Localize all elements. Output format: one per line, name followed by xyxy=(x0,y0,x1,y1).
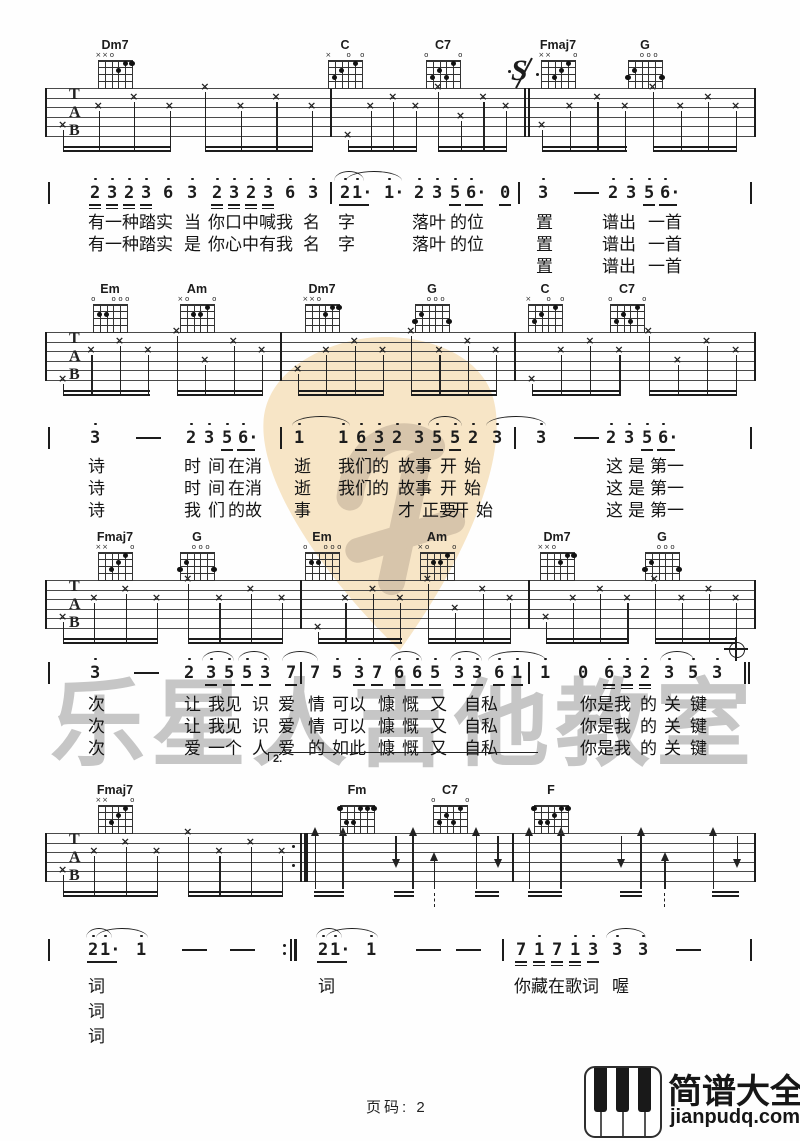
note-stem xyxy=(649,336,650,394)
octave-dot xyxy=(94,423,97,426)
held-dash xyxy=(416,949,441,952)
melody-barline xyxy=(750,427,752,449)
chord-dot xyxy=(632,68,637,73)
octave-dot xyxy=(454,178,457,181)
barline xyxy=(754,88,756,137)
melody-note: 3 xyxy=(432,183,442,203)
beam xyxy=(298,390,384,392)
chord-grid-line xyxy=(98,819,133,820)
underline xyxy=(245,204,257,206)
chord-grid-line xyxy=(534,826,569,827)
melody-note: 6 xyxy=(494,663,504,683)
chord-dot xyxy=(438,560,443,565)
octave-dot xyxy=(538,935,541,938)
underline xyxy=(429,684,441,686)
beam xyxy=(348,146,417,148)
melody-note: 2 xyxy=(90,183,100,203)
note-stem xyxy=(483,594,484,643)
chord-dot xyxy=(323,312,328,317)
chord-dot xyxy=(353,61,358,66)
chord-dot xyxy=(635,305,640,310)
underline xyxy=(123,204,135,206)
lyric-segment: 这 xyxy=(606,496,623,521)
chord-grid-line xyxy=(305,318,340,319)
lyric-segment: 关 xyxy=(664,734,681,759)
note-stem xyxy=(570,111,571,150)
underline xyxy=(449,449,461,451)
underline xyxy=(351,204,369,206)
chord-grid-line xyxy=(528,332,563,333)
lyric-segment: 始 xyxy=(476,496,493,521)
octave-dot xyxy=(216,178,219,181)
note-stem xyxy=(63,384,64,395)
underline xyxy=(499,204,511,206)
note-stem xyxy=(318,632,319,643)
tab-clef-letter: A xyxy=(69,849,81,867)
chord-grid-line xyxy=(540,573,575,574)
strum-arrowhead-down xyxy=(733,859,741,868)
melody-note: 3 xyxy=(712,663,722,683)
chord-grid-line xyxy=(305,332,340,333)
chord-dot xyxy=(316,560,321,565)
segno-dot xyxy=(508,70,511,73)
beam xyxy=(188,891,283,893)
octave-dot xyxy=(628,423,631,426)
chord-dot xyxy=(565,553,570,558)
lyric-segment: 开 xyxy=(452,496,469,521)
chord-grid-line xyxy=(610,311,645,312)
melody-note: 2 xyxy=(606,428,616,448)
chord-dot xyxy=(339,68,344,73)
melody-barline xyxy=(514,427,516,449)
note-stem xyxy=(483,102,484,151)
note-stem xyxy=(625,111,626,150)
chord-grid-line xyxy=(305,325,340,326)
lyric-segment: 如此 xyxy=(332,734,366,759)
chord-grid-line xyxy=(180,552,215,554)
underline xyxy=(639,688,651,690)
underline xyxy=(569,965,581,967)
beam xyxy=(63,394,150,396)
held-dash xyxy=(574,192,599,195)
chord-dot xyxy=(371,806,376,811)
underline xyxy=(643,204,655,206)
strum-arrowhead-up xyxy=(430,852,438,861)
beam xyxy=(318,638,402,640)
barline xyxy=(45,332,47,381)
octave-dot xyxy=(434,658,437,661)
beam xyxy=(653,146,738,148)
note-stem xyxy=(120,346,121,395)
lyric-segment: 的位 xyxy=(450,230,484,255)
octave-dot xyxy=(378,423,381,426)
lyric-segment: 自私 xyxy=(464,734,498,759)
beam xyxy=(542,146,627,148)
strum-down-arrow xyxy=(395,836,396,860)
strum-arrowhead-down xyxy=(392,859,400,868)
note-stem xyxy=(627,603,628,642)
chord-grid-line xyxy=(610,325,645,326)
lyric-segment: 慷 xyxy=(378,734,395,759)
chord-dot xyxy=(332,75,337,80)
octave-dot xyxy=(612,178,615,181)
chord-string-marker: o xyxy=(439,295,446,303)
note-stem xyxy=(590,346,591,395)
melody-note: 3 xyxy=(538,183,548,203)
lyric-segment: 你藏在歌词 xyxy=(514,972,599,997)
lyric-segment: 诗 xyxy=(88,496,105,521)
tie-arc xyxy=(486,416,546,426)
melody-note: 1 xyxy=(570,940,580,960)
chord-string-marker: o xyxy=(451,543,458,551)
underline xyxy=(587,961,599,963)
note-stem xyxy=(416,111,417,150)
tie-arc xyxy=(488,651,546,661)
melody-note: 3 xyxy=(536,428,546,448)
note-stem xyxy=(411,336,412,394)
underline xyxy=(569,961,581,963)
beam xyxy=(620,891,642,893)
melody-note: 2 xyxy=(318,940,328,960)
melody-note: 3 xyxy=(454,663,464,683)
melody-note: 6· xyxy=(466,183,486,203)
underline xyxy=(515,965,527,967)
chord-dot xyxy=(458,806,463,811)
lyric-segment: 我们的 xyxy=(338,474,389,499)
underline xyxy=(355,449,367,451)
chord-grid-line xyxy=(540,580,575,581)
repeat-thick-bar xyxy=(304,833,308,882)
held-dash xyxy=(182,949,207,952)
strum-arrowhead-up xyxy=(311,827,319,836)
barline xyxy=(300,580,302,629)
octave-dot xyxy=(592,935,595,938)
beam xyxy=(348,150,417,152)
chord-dot xyxy=(676,567,681,572)
chord-dot xyxy=(552,813,557,818)
lyric-segment: 的 xyxy=(640,734,657,759)
melody-repeat-dot xyxy=(283,944,286,947)
chord-grid-line xyxy=(340,812,375,813)
melody-note: 5 xyxy=(332,663,342,683)
melody-note: 1 xyxy=(512,663,522,683)
strum-arrowhead-down xyxy=(494,859,502,868)
chord-dot xyxy=(116,68,121,73)
melody-note: 3 xyxy=(354,663,364,683)
lyric-segment: 词 xyxy=(88,1022,105,1047)
melody-note: 7 xyxy=(372,663,382,683)
note-stem xyxy=(126,847,127,896)
chord-grid-line xyxy=(541,74,576,75)
beam xyxy=(653,150,738,152)
note-stem xyxy=(709,594,710,643)
underline xyxy=(621,688,633,690)
octave-dot xyxy=(289,178,292,181)
beam xyxy=(188,642,283,644)
staff-line xyxy=(45,117,754,118)
tab-clef-letter: B xyxy=(69,867,80,885)
chord-grid-line xyxy=(180,325,215,326)
chord-dot xyxy=(431,560,436,565)
lyric-segment: 慨 xyxy=(402,734,419,759)
staff-line xyxy=(45,98,754,99)
lyric-segment: 是 xyxy=(184,230,201,255)
lyric-segment: 词 xyxy=(88,972,105,997)
lyric-segment: 才 xyxy=(398,496,415,521)
beam xyxy=(655,638,738,640)
melody-note: 2 xyxy=(608,183,618,203)
melody-note: 6 xyxy=(163,183,173,203)
beam xyxy=(63,642,158,644)
beam xyxy=(411,394,497,396)
note-stem xyxy=(219,603,220,642)
chord-dot xyxy=(558,560,563,565)
chord-dot xyxy=(649,560,654,565)
chord-grid-line xyxy=(180,566,215,567)
melody-note: 2 xyxy=(340,183,350,203)
octave-dot xyxy=(145,178,148,181)
beam xyxy=(649,394,738,396)
melody-note: 6 xyxy=(394,663,404,683)
beam xyxy=(411,390,497,392)
chord-string-marker: o xyxy=(124,295,131,303)
melody-note: 1 xyxy=(294,428,304,448)
staff-line xyxy=(45,107,754,108)
melody-barline xyxy=(518,182,520,204)
note-stem xyxy=(251,594,252,643)
chord-dot xyxy=(559,806,564,811)
chord-dot xyxy=(538,820,543,825)
held-dash xyxy=(456,949,481,952)
note-stem xyxy=(177,336,178,394)
note-stem xyxy=(373,594,374,643)
melody-note: 0 xyxy=(578,663,588,683)
melody-note: 3 xyxy=(141,183,151,203)
chord-dot xyxy=(659,75,664,80)
chord-dot xyxy=(337,806,342,811)
octave-dot xyxy=(396,423,399,426)
melody-note: 1· xyxy=(384,183,404,203)
lyric-segment: 的故 xyxy=(228,496,262,521)
melody-note: 6 xyxy=(604,663,614,683)
underline xyxy=(241,684,253,686)
chord-string-marker: o xyxy=(457,51,464,59)
melody-note: 3 xyxy=(414,428,424,448)
lyric-segment: 事 xyxy=(294,496,311,521)
melody-barline xyxy=(48,939,50,961)
note-stem xyxy=(157,856,158,895)
underline xyxy=(641,449,653,451)
chord-dot xyxy=(552,75,557,80)
note-stem xyxy=(219,856,220,895)
tie-arc xyxy=(292,416,350,426)
repeat-dot xyxy=(292,845,295,848)
melody-repeat-thick xyxy=(294,939,298,961)
strum-arrowhead-up xyxy=(709,827,717,836)
chord-dot xyxy=(437,820,442,825)
underline xyxy=(228,204,240,206)
chord-dot xyxy=(123,806,128,811)
octave-dot xyxy=(542,178,545,181)
chord-dot xyxy=(553,305,558,310)
underline xyxy=(393,684,405,686)
beam xyxy=(649,390,738,392)
chord-string-marker: o xyxy=(424,543,431,551)
melody-note: 3 xyxy=(263,183,273,203)
chord-grid-line xyxy=(534,812,569,813)
beam xyxy=(428,638,512,640)
beam xyxy=(188,895,283,897)
chord-grid-line xyxy=(415,318,450,319)
beam xyxy=(314,895,345,897)
chord-dot xyxy=(539,312,544,317)
chord-dot xyxy=(621,312,626,317)
chord-dot xyxy=(628,319,633,324)
chord-grid-line xyxy=(98,566,133,567)
underline xyxy=(285,684,297,686)
lyric-segment: 们 xyxy=(208,496,225,521)
lyric-segment: 第一 xyxy=(650,496,684,521)
note-stem xyxy=(262,355,263,394)
chord-grid-line xyxy=(645,573,680,574)
chord-grid-line xyxy=(541,67,576,68)
barline xyxy=(512,833,514,882)
octave-dot xyxy=(242,423,245,426)
underline xyxy=(465,204,483,206)
underline xyxy=(371,684,383,686)
staff-line xyxy=(45,126,754,127)
melody-note: 3 xyxy=(622,663,632,683)
melody-final-bar xyxy=(744,662,746,684)
chord-dot xyxy=(358,806,363,811)
underline xyxy=(511,684,523,686)
tab-clef-letter: A xyxy=(69,596,81,614)
tie-arc xyxy=(202,651,234,661)
strum-up-arrow xyxy=(664,859,665,889)
chord-dot xyxy=(184,560,189,565)
chord-dot xyxy=(445,553,450,558)
melody-note: 0 xyxy=(500,183,510,203)
chord-dot xyxy=(437,68,442,73)
chord-dot xyxy=(566,61,571,66)
beam xyxy=(205,150,313,152)
chord-dot xyxy=(97,312,102,317)
lyric-segment: 喔 xyxy=(612,972,629,997)
barline xyxy=(524,88,526,137)
chord-grid-line xyxy=(540,559,575,560)
melody-note: 5 xyxy=(450,183,460,203)
chord-grid-line xyxy=(93,325,128,326)
chord-string-marker: o xyxy=(545,295,552,303)
melody-note: 7 xyxy=(516,940,526,960)
underline xyxy=(205,684,217,686)
chord-dot xyxy=(109,567,114,572)
melody-barline xyxy=(750,182,752,204)
note-stem xyxy=(655,584,656,642)
beam xyxy=(475,891,499,893)
coda-icon xyxy=(729,642,745,658)
note-stem xyxy=(348,140,349,151)
lyric-segment: 字 xyxy=(338,230,355,255)
melody-note: 1· xyxy=(100,940,120,960)
melody-note: 7 xyxy=(286,663,296,683)
chord-grid-line xyxy=(98,88,133,89)
underline xyxy=(533,961,545,963)
octave-dot xyxy=(716,658,719,661)
underline xyxy=(237,449,255,451)
melody-note: 5 xyxy=(688,663,698,683)
chord-string-marker: o xyxy=(90,295,97,303)
chord-string-marker: × xyxy=(525,295,532,303)
chord-grid-line xyxy=(528,311,563,312)
chord-string-marker: o xyxy=(359,51,366,59)
lyric-segment: 我 xyxy=(184,496,201,521)
melody-note: 3 xyxy=(260,663,270,683)
chord-dot xyxy=(614,319,619,324)
beam xyxy=(394,895,414,897)
chord-dot xyxy=(532,319,537,324)
held-dash xyxy=(676,949,701,952)
octave-dot xyxy=(418,178,421,181)
chord-grid-line xyxy=(98,580,133,581)
strum-up-arrow xyxy=(315,834,316,889)
melody-note: 6 xyxy=(285,183,295,203)
octave-dot xyxy=(312,178,315,181)
chord-string-marker: o xyxy=(345,51,352,59)
strum-up-arrow xyxy=(342,834,343,889)
chord-string-marker: o xyxy=(129,543,136,551)
melody-note: 3 xyxy=(492,428,502,448)
beam xyxy=(655,642,738,644)
chord-grid-line xyxy=(610,332,645,333)
octave-dot xyxy=(191,178,194,181)
lyric-segment: 次 xyxy=(88,734,105,759)
tie-arc xyxy=(660,651,694,661)
chord-dot xyxy=(451,61,456,66)
note-stem xyxy=(561,355,562,394)
underline xyxy=(211,204,223,206)
strum-down-arrow xyxy=(621,836,622,860)
melody-note: 2 xyxy=(640,663,650,683)
beam xyxy=(475,895,499,897)
octave-dot xyxy=(250,178,253,181)
chord-string-marker: o xyxy=(641,295,648,303)
chord-string-marker: o xyxy=(108,51,115,59)
barline xyxy=(754,833,756,882)
chord-dot xyxy=(419,312,424,317)
chord-grid-line xyxy=(541,88,576,89)
held-dash xyxy=(136,437,161,440)
melody-note: 6· xyxy=(238,428,258,448)
chord-string-marker: o xyxy=(336,543,343,551)
chord-string-marker: o xyxy=(184,295,191,303)
octave-dot xyxy=(360,423,363,426)
staff-line xyxy=(45,136,754,137)
strum-arrowhead-down xyxy=(617,859,625,868)
beam xyxy=(712,891,739,893)
note-stem xyxy=(468,346,469,395)
chord-grid-line xyxy=(420,573,455,574)
octave-dot xyxy=(358,658,361,661)
chord-dot xyxy=(625,75,630,80)
chord-grid-line xyxy=(420,566,455,567)
tab-clef-letter: T xyxy=(69,86,80,104)
melody-note: 3 xyxy=(308,183,318,203)
underline xyxy=(329,961,347,963)
chord-dot xyxy=(211,567,216,572)
melody-note: 3 xyxy=(229,183,239,203)
lyric-segment: 正要 xyxy=(422,496,456,521)
